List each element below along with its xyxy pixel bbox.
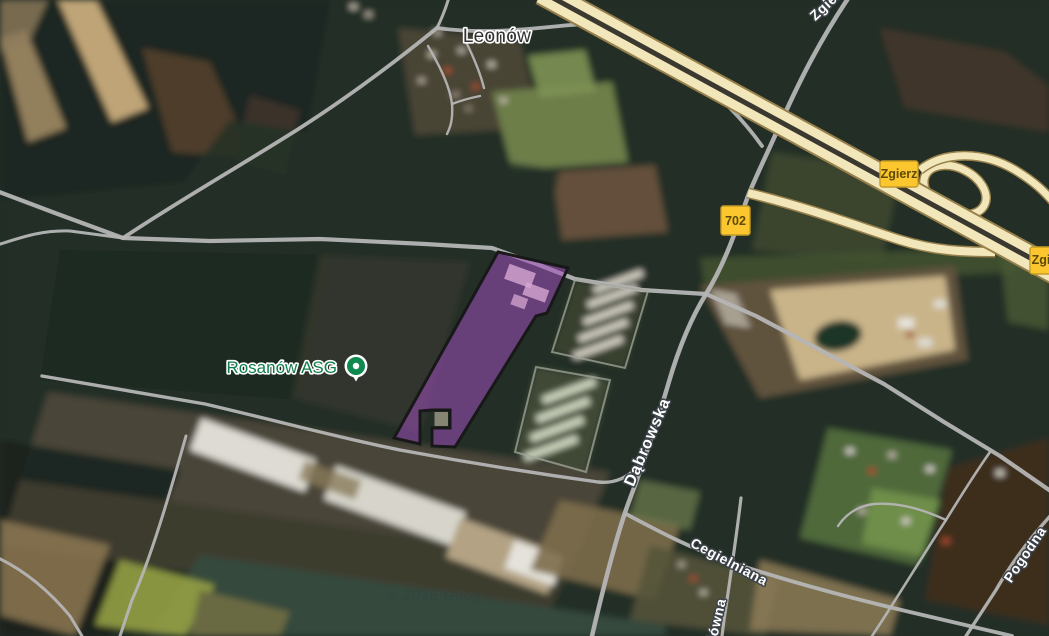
- shed: [906, 332, 914, 337]
- marker-dot: [353, 363, 359, 369]
- route-sign-zgierz-1: Zgierz: [880, 161, 918, 187]
- place-label-leonow[interactable]: Leonów: [463, 26, 531, 47]
- map-attribution: © 2026 Google: [387, 587, 494, 603]
- forest-patch: [40, 250, 330, 400]
- poi-label[interactable]: Rosanów ASG: [226, 358, 337, 377]
- sign-text: 702: [725, 214, 746, 228]
- shed: [918, 338, 932, 347]
- sign-text: Zgierz: [1032, 253, 1049, 267]
- field-green: [528, 50, 596, 98]
- excluded-building: [435, 412, 449, 426]
- route-sign-zgierz-2: Zgierz: [1030, 247, 1049, 274]
- sign-text: Zgierz: [881, 167, 918, 181]
- shed: [934, 300, 946, 308]
- map-canvas[interactable]: Zgierz 702 Zgierz Dąbrowska Cegielniana …: [0, 0, 1049, 636]
- shed: [898, 318, 914, 328]
- field-brown: [552, 165, 668, 240]
- satellite-map: Zgierz 702 Zgierz Dąbrowska Cegielniana …: [0, 0, 1049, 636]
- route-sign-702: 702: [721, 206, 750, 235]
